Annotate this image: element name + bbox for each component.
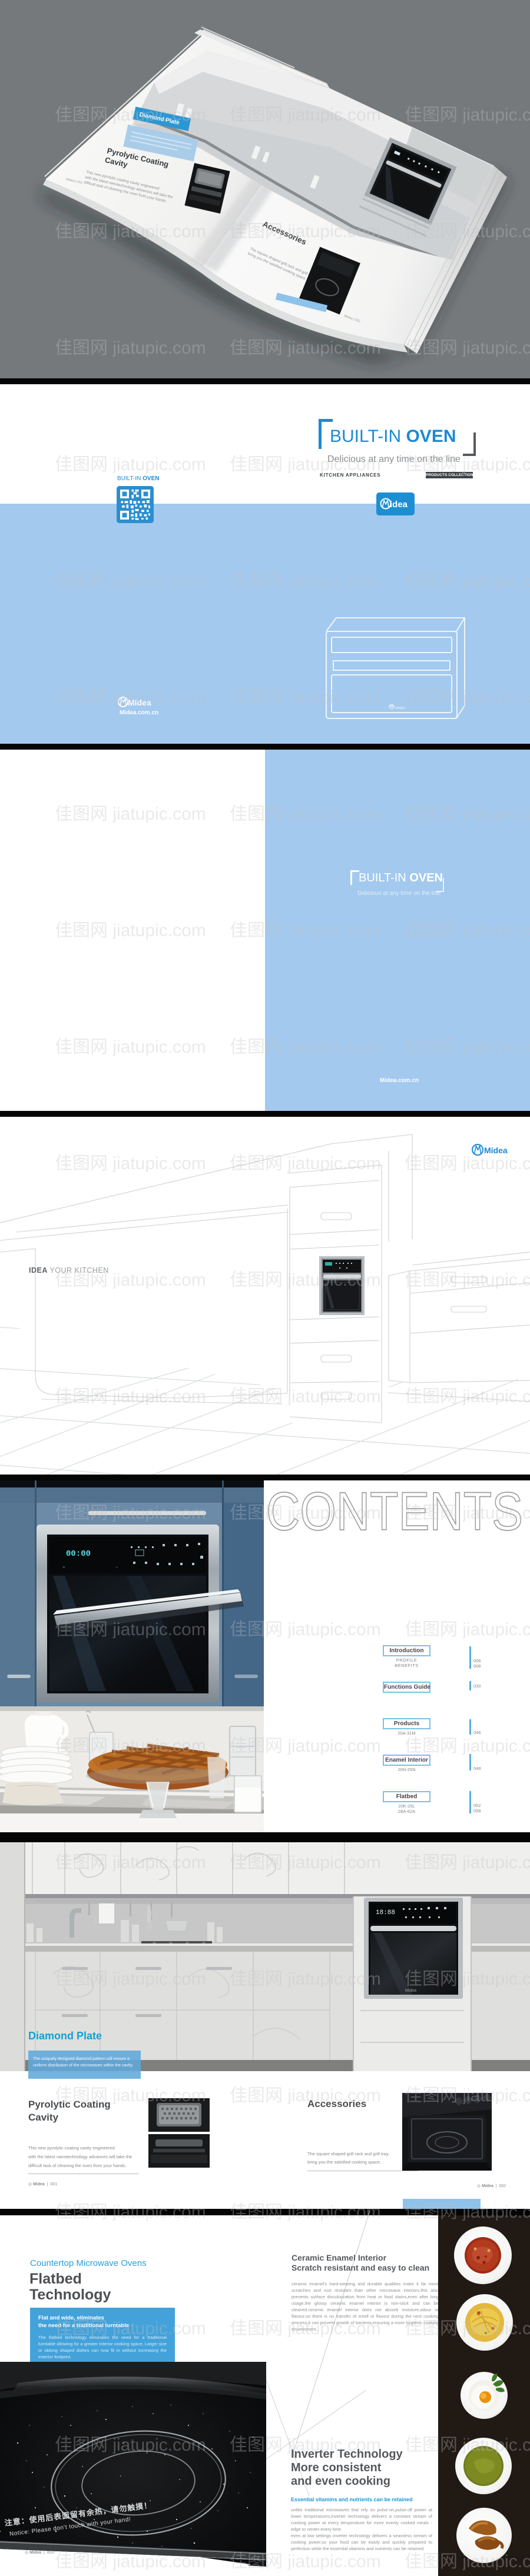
svg-text:Midea: Midea — [118, 1695, 131, 1700]
svg-text:Midea: Midea — [128, 698, 151, 707]
svg-text:CONTENTS: CONTENTS — [266, 1482, 523, 1539]
svg-text:idea: idea — [390, 500, 408, 510]
svg-text:18:88: 18:88 — [376, 1909, 395, 1916]
svg-text:+: + — [62, 1565, 65, 1570]
svg-text:Midea: Midea — [484, 1146, 508, 1155]
svg-text:IDEA YOUR KITCHEN: IDEA YOUR KITCHEN — [29, 1266, 109, 1274]
svg-text:Midea: Midea — [405, 1989, 416, 1993]
svg-text:00:00: 00:00 — [66, 1549, 91, 1559]
svg-text:Midea: Midea — [395, 707, 405, 710]
svg-text:−: − — [115, 1565, 118, 1570]
